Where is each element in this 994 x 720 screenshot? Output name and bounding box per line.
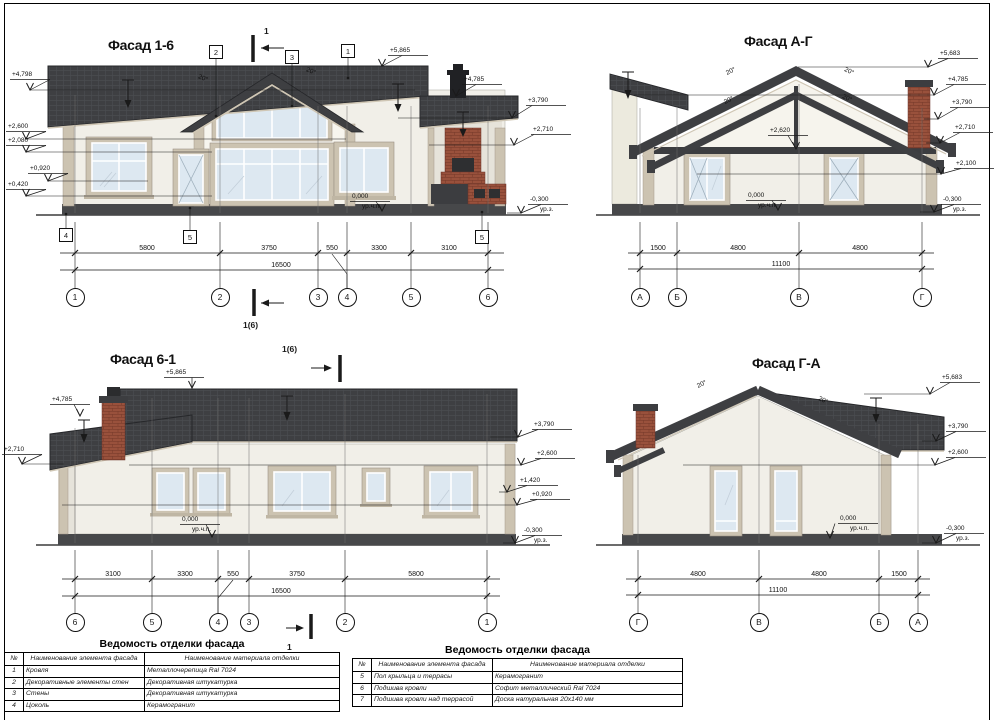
elevation-mark-label: +2,600 [948,449,968,456]
table-cell: Металлочерепица Ral 7024 [145,666,340,678]
table-cell: 2 [5,677,24,689]
table-cell: Цоколь [24,700,145,712]
roof-slope-label: 20° [723,95,735,106]
table-row: 5Пол крыльца и террасыКерамогранит [353,672,683,684]
facade-title-6-1: Фасад 6-1 [110,351,176,367]
table-row: 4ЦокольКерамогранит [5,700,340,712]
roof-slope-label: 20° [197,73,209,83]
axis-bubble: А [631,288,650,307]
table-header-row: №Наименование элемента фасадаНаименовани… [353,659,683,672]
axis-bubble: Б [668,288,687,307]
finish-schedule: №Наименование элемента фасадаНаименовани… [352,658,683,707]
table-cell: Декоративная штукатурка [145,677,340,689]
column-header: Наименование материала отделки [493,659,683,672]
callout-box: 4 [59,228,73,242]
table-cell: Керамогранит [145,700,340,712]
column-header: Наименование элемента фасада [24,653,145,666]
column-header: Наименование элемента фасада [372,659,493,672]
level-name-label: ур.ч.п. [850,525,869,532]
level-name-label: ур.з. [540,206,553,213]
table-cell: 1 [5,666,24,678]
column-header: Наименование материала отделки [145,653,340,666]
callout-box: 1 [341,44,355,58]
axis-bubble: 6 [66,613,85,632]
dimension-value: 1500 [650,245,666,252]
level-name-label: ур.з. [956,535,969,542]
table-cell: 7 [353,695,372,707]
section-mark-label: 1 [264,26,269,36]
table-cell: Декоративная штукатурка [145,689,340,701]
elevation-mark-label: 0,000 [352,193,368,200]
elevation-mark-label: +0,420 [8,181,28,188]
elevation-mark-label: +0,920 [532,491,552,498]
roof-slope-label: 20° [841,93,853,104]
dimension-value: 3300 [371,245,387,252]
table-cell: 6 [353,683,372,695]
dimension-value: 4800 [811,571,827,578]
elevation-mark-label: +5,683 [942,374,962,381]
elevation-mark-label: 0,000 [748,192,764,199]
elevation-mark-label: +4,785 [948,76,968,83]
table-header-row: №Наименование элемента фасадаНаименовани… [5,653,340,666]
elevation-mark-label: -0,300 [943,196,961,203]
axis-bubble: Б [870,613,889,632]
elevation-mark-label: +2,600 [537,450,557,457]
table-cell: Кровля [24,666,145,678]
table-row: 7Подшива кровли над террасойДоска натура… [353,695,683,707]
elevation-mark-label: +5,683 [940,50,960,57]
axis-bubble: 5 [143,613,162,632]
callout-box: 5 [475,230,489,244]
roof-slope-label: 20° [725,66,737,77]
roof-slope-label: 20° [696,379,708,390]
elevation-mark-label: +2,710 [955,124,975,131]
elevation-mark-label: +3,790 [534,421,554,428]
axis-bubble: В [790,288,809,307]
elevation-mark-label: +3,790 [948,423,968,430]
level-name-label: ур.з. [953,206,966,213]
table-cell: Доска натуральная 20х140 мм [493,695,683,707]
axis-bubble: 5 [402,288,421,307]
roof-slope-label: 20° [305,66,317,76]
finish-schedule: №Наименование элемента фасадаНаименовани… [4,652,340,712]
axis-bubble: Г [629,613,648,632]
dimension-value: 3750 [289,571,305,578]
elevation-mark-label: +3,790 [528,97,548,104]
section-mark-label: 1(6) [282,344,297,354]
level-name-label: ур.ч.п. [192,526,211,533]
dimension-value: 4800 [690,571,706,578]
elevation-mark-label: +4,785 [52,396,72,403]
table-cell: 5 [353,672,372,684]
elevation-mark-label: +2,600 [8,123,28,130]
elevation-mark-label: 0,000 [182,516,198,523]
axis-bubble: 4 [209,613,228,632]
roof-slope-label: 20° [817,395,829,406]
axis-bubble: 6 [479,288,498,307]
elevation-mark-label: +3,790 [952,99,972,106]
dimension-value: 1500 [891,571,907,578]
table-cell: 4 [5,700,24,712]
elevation-mark-label: +1,420 [520,477,540,484]
axis-bubble: 1 [66,288,85,307]
table-cell: Подшива кровли над террасой [372,695,493,707]
table-cell: Софит металлический Ral 7024 [493,683,683,695]
axis-bubble: 4 [338,288,357,307]
elevation-mark-label: +4,798 [12,71,32,78]
table-title: Ведомость отделки фасада [4,638,340,650]
level-name-label: ур.з. [534,537,547,544]
facade-title-a-g: Фасад А-Г [744,33,812,49]
table-row: 6Подшива кровлиСофит металлический Ral 7… [353,683,683,695]
table-row: 1КровляМеталлочерепица Ral 7024 [5,666,340,678]
axis-bubble: В [750,613,769,632]
dimension-value: 16500 [271,588,290,595]
finish-schedule-table-left: Ведомость отделки фасада №Наименование э… [4,638,340,712]
elevation-mark-label: +2,710 [4,446,24,453]
facade-title-1-6: Фасад 1-6 [108,37,174,53]
table-row: 3СтеныДекоративная штукатурка [5,689,340,701]
axis-bubble: 2 [211,288,230,307]
section-mark-label: 1(6) [243,320,258,330]
elevation-mark-label: +2,100 [956,160,976,167]
dimension-value: 3100 [105,571,121,578]
table-cell: Пол крыльца и террасы [372,672,493,684]
dimension-value: 3300 [177,571,193,578]
elevation-mark-label: +2,620 [770,127,790,134]
facade-title-g-a: Фасад Г-А [752,355,820,371]
elevation-mark-label: +5,865 [166,369,186,376]
roof-slope-label: 20° [843,66,855,77]
table-title: Ведомость отделки фасада [352,644,683,656]
dimension-value: 4800 [852,245,868,252]
level-name-label: ур.ч.п. [758,202,777,209]
callout-box: 5 [183,230,197,244]
column-header: № [353,659,372,672]
elevation-mark-label: +0,920 [30,165,50,172]
table-cell: Стены [24,689,145,701]
elevation-mark-label: +2,080 [8,137,28,144]
dimension-value: 3750 [261,245,277,252]
dimension-value: 16500 [271,262,290,269]
elevation-mark-label: +5,865 [390,47,410,54]
table-cell: Керамогранит [493,672,683,684]
dimension-value: 550 [326,245,338,252]
axis-bubble: Г [913,288,932,307]
dimension-value: 11100 [769,587,787,594]
elevation-mark-label: -0,300 [946,525,964,532]
elevation-mark-label: 0,000 [840,515,856,522]
dimension-value: 550 [227,571,239,578]
elevation-mark-label: +4,785 [464,76,484,83]
axis-bubble: А [909,613,928,632]
elevation-mark-label: +2,710 [533,126,553,133]
elevation-mark-label: -0,300 [530,196,548,203]
table-row: 2Декоративные элементы стенДекоративная … [5,677,340,689]
axis-bubble: 3 [309,288,328,307]
dimension-value: 4800 [730,245,746,252]
dimension-value: 5800 [139,245,155,252]
table-cell: Декоративные элементы стен [24,677,145,689]
callout-box: 2 [209,45,223,59]
elevation-mark-label: -0,300 [524,527,542,534]
finish-schedule-table-right: Ведомость отделки фасада №Наименование э… [352,644,683,707]
level-name-label: ур.ч.п. [362,203,381,210]
axis-bubble: 1 [478,613,497,632]
callout-box: 3 [285,50,299,64]
dimension-value: 11100 [772,261,790,268]
dimension-value: 3100 [441,245,457,252]
labels-layer: Фасад 1-6 Фасад А-Г Фасад 6-1 Фасад Г-А … [0,0,994,719]
axis-bubble: 2 [336,613,355,632]
dimension-value: 5800 [408,571,424,578]
table-cell: Подшива кровли [372,683,493,695]
axis-bubble: 3 [240,613,259,632]
table-cell: 3 [5,689,24,701]
column-header: № [5,653,24,666]
